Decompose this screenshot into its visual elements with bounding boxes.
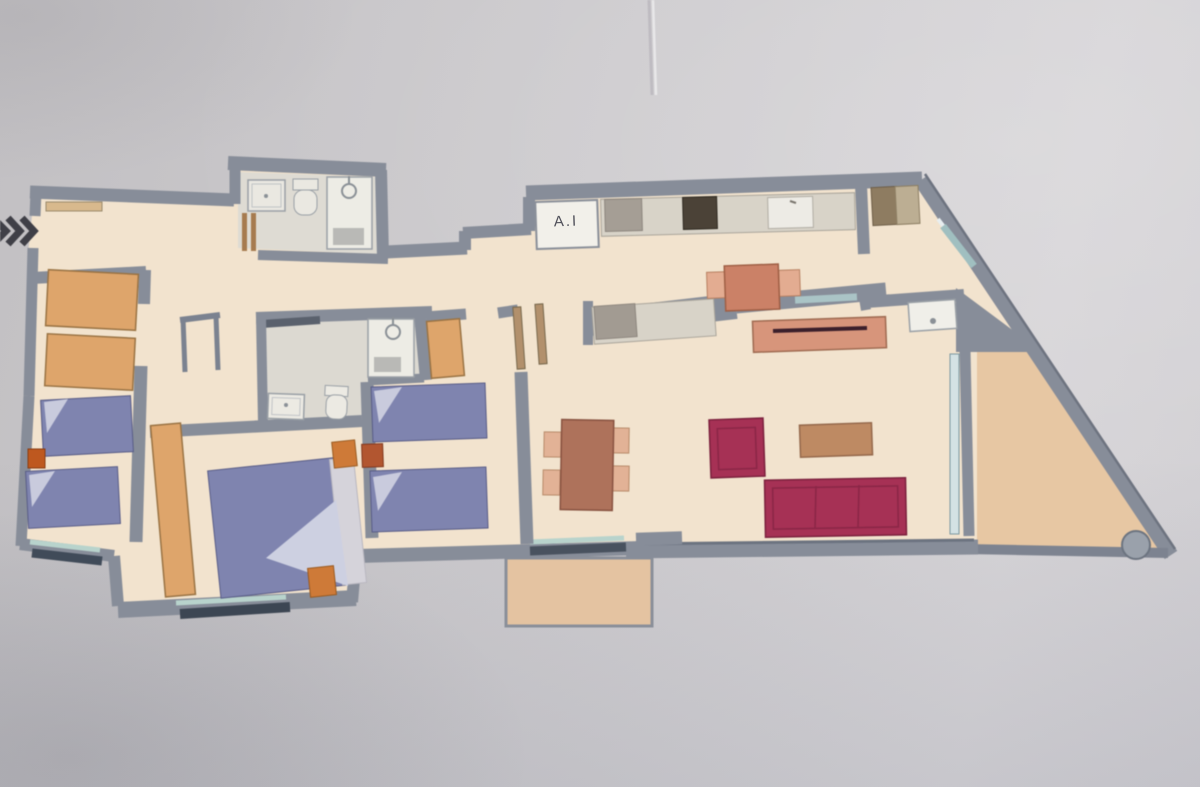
window-bedroom3-shadow xyxy=(530,547,626,551)
wall-bedroom1-right xyxy=(136,366,141,542)
bath1-shower-mat xyxy=(333,228,364,245)
wall-entry-top xyxy=(30,192,234,200)
wall-living-bottom xyxy=(626,547,978,551)
wall-step-a xyxy=(386,248,467,252)
living-sideboard xyxy=(752,317,886,353)
wall-utility-stub xyxy=(864,298,866,310)
kitchen-appliance xyxy=(605,199,643,232)
wall-bath2-top xyxy=(256,312,432,318)
utility-sink-tap xyxy=(930,318,936,324)
entry-chevron-1 xyxy=(0,219,6,243)
living-sofa-div-1 xyxy=(815,486,816,529)
utility-closet-light xyxy=(895,185,920,224)
balcony-floor xyxy=(506,558,652,626)
wall-kitchen-right xyxy=(861,185,864,254)
kitchen-chair-right xyxy=(779,270,801,297)
wall-step-b1-b2 xyxy=(114,556,118,606)
entry-door-leaf xyxy=(46,202,102,211)
wall-shower-right xyxy=(420,315,426,380)
dining-chair-3 xyxy=(612,428,629,453)
bedroom1-wardrobe-upper xyxy=(46,270,139,331)
bath1-toilet-bowl xyxy=(294,190,317,215)
wall-bath1-right xyxy=(381,170,383,258)
terrace-floor xyxy=(977,350,1166,550)
glass-pane-terrace xyxy=(950,354,959,534)
utility-closet-dark xyxy=(871,186,898,225)
wall-glass-right xyxy=(965,350,969,536)
floor-plan xyxy=(0,0,1200,787)
living-sofa-div-2 xyxy=(858,485,859,528)
bath1-sink-tap xyxy=(264,194,268,198)
bedroom2-nightstand-a xyxy=(332,440,358,468)
bedroom3-nightstand xyxy=(362,444,384,468)
paper-fold-shadow xyxy=(649,0,652,95)
bath2-shower-mat xyxy=(374,357,401,372)
wall-bath1-top xyxy=(228,163,386,170)
doorjamb-bath1-b xyxy=(251,213,256,251)
kitchen-lower-appliance xyxy=(594,304,637,340)
doorjamb-bath1-a xyxy=(242,213,247,251)
wall-under-shower xyxy=(368,378,424,381)
terrace-table xyxy=(1122,531,1150,559)
corridor-doorframe-left xyxy=(183,318,185,372)
wall-balcony-notch xyxy=(636,531,682,546)
kitchen-table xyxy=(724,264,780,311)
wall-step-c xyxy=(463,229,531,233)
paper-fold-highlight xyxy=(653,0,656,95)
photo-paper: A.I xyxy=(0,0,1200,787)
kitchen-stove xyxy=(683,197,718,230)
bath2-sink-tap xyxy=(284,403,288,407)
dining-chair-2 xyxy=(543,470,560,495)
bath2-toilet-bowl xyxy=(325,394,347,419)
corridor-doorframe-right xyxy=(216,316,218,370)
wall-bath1-bottom xyxy=(258,255,388,259)
wall-corridor-left-upper xyxy=(144,270,145,304)
dining-table xyxy=(560,420,614,511)
bedroom3-wardrobe xyxy=(427,319,465,379)
dining-chair-1 xyxy=(544,432,561,457)
bedroom1-nightstand xyxy=(28,449,45,468)
utility-sink xyxy=(908,299,957,331)
dining-chair-4 xyxy=(612,466,629,491)
wall-bedroom3-living xyxy=(521,372,527,544)
wall-bath2-left xyxy=(261,317,263,422)
window-bedroom2-shadow xyxy=(180,607,290,614)
bedroom2-nightstand-b xyxy=(308,566,337,598)
bath2-lintel xyxy=(262,320,320,324)
room-label-ai: A.I xyxy=(534,212,599,231)
wall-bedroom3-top-a xyxy=(426,314,466,317)
bedroom1-wardrobe-lower xyxy=(45,334,136,391)
bath1-toilet-tank xyxy=(293,179,318,190)
wall-left-mid xyxy=(29,248,33,396)
wall-entry-left-upper xyxy=(35,192,36,216)
living-coffee-table xyxy=(799,423,872,457)
